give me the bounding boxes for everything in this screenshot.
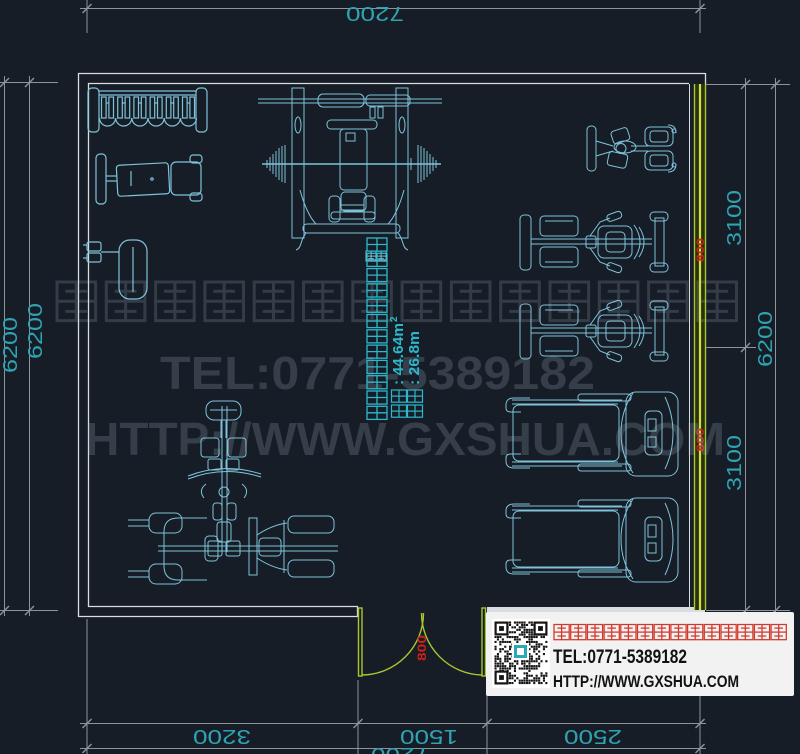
svg-text:6200: 6200 xyxy=(25,303,47,359)
svg-text:HTTP://WWW.GXSHUA.COM: HTTP://WWW.GXSHUA.COM xyxy=(553,672,739,691)
svg-text:: 44.64m: : 44.64m xyxy=(391,323,407,385)
svg-text:2: 2 xyxy=(389,316,400,322)
svg-text:: 26.8m: : 26.8m xyxy=(407,331,423,385)
svg-text:HTTP://WWW.GXSHUA.COM: HTTP://WWW.GXSHUA.COM xyxy=(85,413,725,465)
svg-text:800: 800 xyxy=(415,635,429,661)
svg-text:3100: 3100 xyxy=(724,190,746,246)
svg-text:7200: 7200 xyxy=(371,743,429,754)
svg-text:3100: 3100 xyxy=(724,435,746,491)
svg-text:2500: 2500 xyxy=(564,725,622,747)
svg-text:3200: 3200 xyxy=(193,725,251,747)
svg-text:6200: 6200 xyxy=(0,317,22,373)
svg-text:800: 800 xyxy=(695,238,707,262)
svg-text:6200: 6200 xyxy=(755,311,777,367)
svg-text:TEL:0771-5389182: TEL:0771-5389182 xyxy=(553,647,687,668)
svg-text:7200: 7200 xyxy=(346,2,404,24)
